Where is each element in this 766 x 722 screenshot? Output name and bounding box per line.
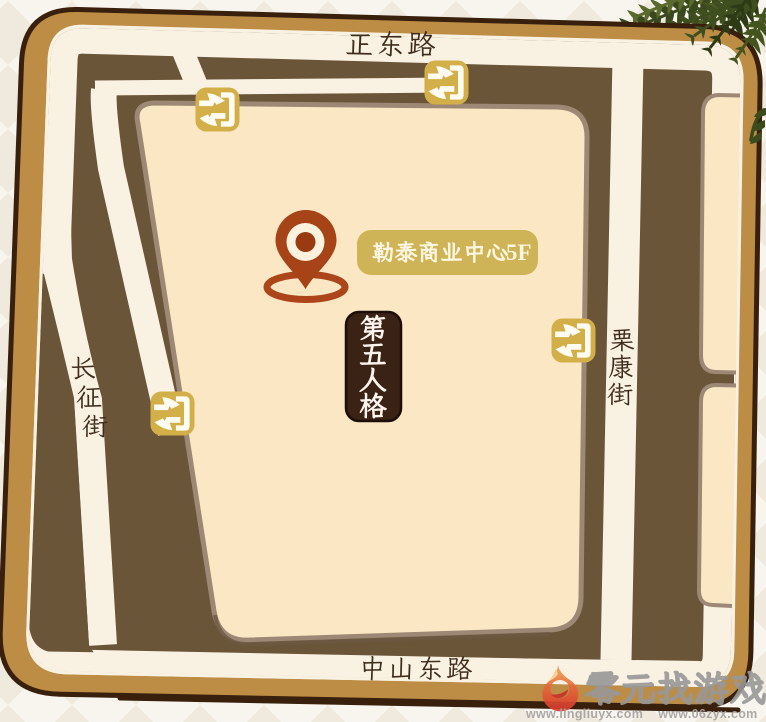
svg-text:5F: 5F <box>506 240 532 265</box>
svg-text:www.lingliuyx.com www.06zyx: www.lingliuyx.com www.06zyx.com <box>525 707 758 721</box>
